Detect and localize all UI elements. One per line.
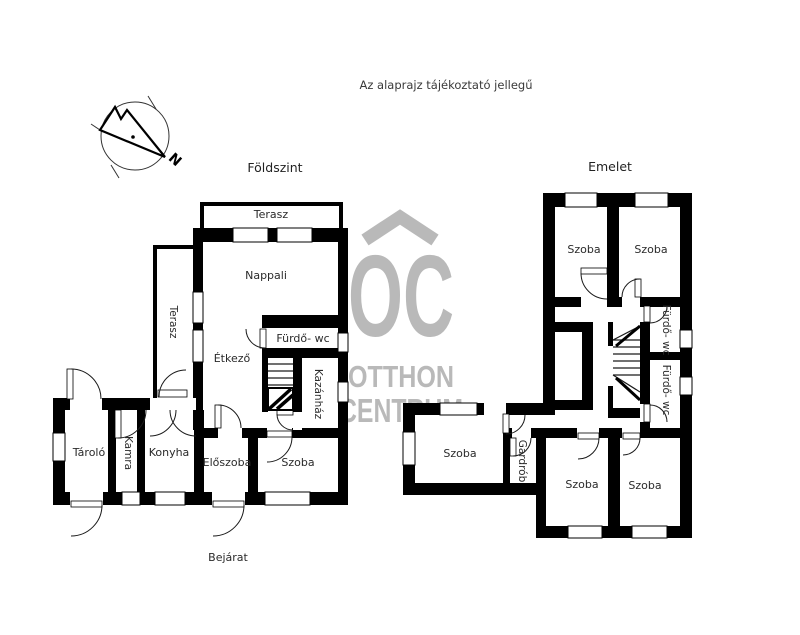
room-label-etkezo: Étkező [214, 352, 251, 365]
ground-floor-plan: Terasz Nappali Terasz Fürdő- wc Étkező K… [45, 190, 355, 575]
room-label-szoba-tl: Szoba [567, 243, 600, 256]
compass-north-label: N [165, 150, 184, 170]
entrance-label: Bejárat [208, 551, 248, 564]
room-label-furdo-wc-2: Fürdő- wc [660, 365, 672, 416]
room-label-szoba-gf: Szoba [281, 456, 314, 469]
compass-needle-icon [100, 107, 165, 157]
room-label-terasz-side: Terasz [167, 305, 179, 339]
upper-floor-title: Emelet [550, 159, 670, 174]
gf-stairs [268, 364, 293, 410]
room-label-eloszoba: Előszoba [203, 456, 252, 469]
compass-center-dot [131, 135, 135, 139]
room-label-furdo-wc: Fürdő- wc [276, 332, 329, 345]
room-label-szoba-tr: Szoba [634, 243, 667, 256]
room-label-furdo-wc-1: Fürdő- wc [660, 305, 672, 356]
room-label-kamra: Kamra [122, 436, 134, 470]
room-label-szoba-br: Szoba [628, 479, 661, 492]
room-label-szoba-wing: Szoba [443, 447, 476, 460]
upper-floor-plan: Szoba Szoba Fürdő- wc Fürdő- wc Szoba Ga… [395, 185, 700, 545]
compass-rose: N [85, 90, 185, 185]
room-label-gardrob: Gardrób [516, 440, 528, 483]
ground-floor-title: Földszint [215, 160, 335, 175]
room-label-konyha: Konyha [149, 446, 190, 459]
room-label-szoba-bm: Szoba [565, 478, 598, 491]
floorplan-page: Az alaprajz tájékoztató jellegű OC OTTHO… [0, 0, 800, 635]
room-label-terasz-top: Terasz [253, 208, 289, 221]
room-label-nappali: Nappali [245, 269, 287, 282]
room-label-kazanhaz: Kazánház [312, 369, 324, 420]
disclaimer-text: Az alaprajz tájékoztató jellegű [341, 78, 551, 92]
room-label-tarolo: Tároló [72, 446, 106, 459]
